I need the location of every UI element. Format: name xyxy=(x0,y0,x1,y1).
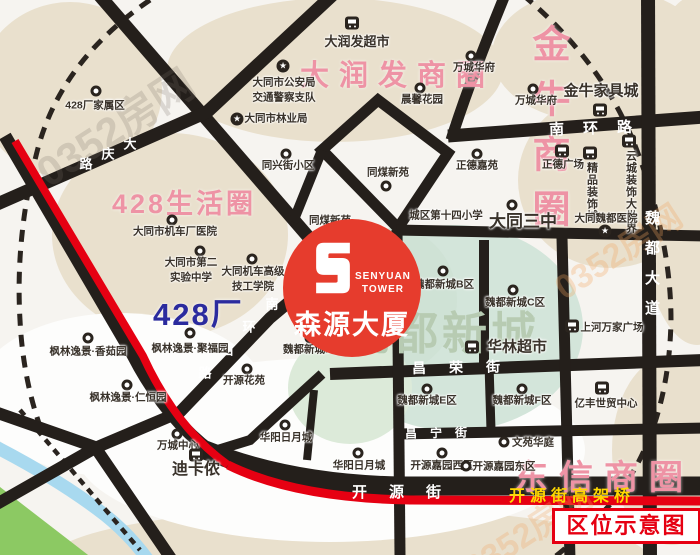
pin-icon xyxy=(437,448,448,459)
poi-label: 上河万家广场 xyxy=(581,321,644,336)
poi-label: 大同市机车厂医院 xyxy=(133,225,217,240)
cart-icon xyxy=(583,147,597,160)
poi-label: 大同魏都医院 xyxy=(575,212,638,227)
road-label-nanhuan-west-road: 环 xyxy=(242,317,255,336)
pin-icon xyxy=(507,200,518,211)
road-label-daqing-road: 大 xyxy=(123,134,136,153)
logo-chinese-name: 森源大厦 xyxy=(294,303,410,342)
road-label-nanhuan-west-road: 路 xyxy=(198,363,211,382)
cart-icon xyxy=(565,320,579,333)
poi-label: 大同市公安局 交通警察支队 xyxy=(253,75,316,104)
pin-icon xyxy=(91,86,102,97)
poi-label: 正德广场 xyxy=(542,158,584,173)
business-circle-428: 428生活圈 xyxy=(112,182,256,221)
poi-label: 华阳日月城 xyxy=(333,459,386,474)
star-icon: ★ xyxy=(231,113,244,126)
road-label-kaiyuan-viaduct: 开源街高架桥 xyxy=(509,482,635,506)
poi-label: 正德嘉苑 xyxy=(456,159,498,174)
road-label-kaiyuan-street: 开源街 xyxy=(352,481,463,502)
poi-label: 开源嘉园东区 xyxy=(473,460,536,475)
poi-label: 开源花苑 xyxy=(223,374,265,389)
poi-label: 428厂家属区 xyxy=(65,99,125,114)
pin-icon xyxy=(280,420,291,431)
poi-label: 魏都新城C区 xyxy=(485,296,545,311)
poi-label: 万城华府 xyxy=(515,94,557,109)
senyuan-tower-logo: SENYUANTOWER 森源大厦 xyxy=(283,219,421,357)
poi-label: 晨馨花园 xyxy=(401,93,443,108)
poi-label: 金牛家具城 xyxy=(563,81,638,102)
star-icon: ★ xyxy=(277,60,290,73)
road-label-changning-street: 昌宁街 xyxy=(405,423,480,441)
poi-label: 大同市林业局 xyxy=(245,112,308,127)
poi-label: 魏都新城B区 xyxy=(414,278,474,293)
cart-icon xyxy=(595,382,609,395)
poi-label: 大同机车高级 技工学院 xyxy=(222,264,285,293)
pin-icon xyxy=(438,266,449,277)
poi-label: 迪卡侬 xyxy=(172,459,220,481)
poi-label: 魏都新城F区 xyxy=(493,394,552,409)
poi-label: 枫林逸景·香茹园 xyxy=(50,345,127,360)
pin-icon xyxy=(247,254,258,265)
cart-icon xyxy=(593,104,607,117)
poi-label: 万城华府 xyxy=(453,61,495,76)
pin-icon xyxy=(122,380,133,391)
poi-label: 大润发超市 xyxy=(324,33,389,51)
cart-icon xyxy=(622,135,636,148)
poi-label: 文苑华庭 xyxy=(512,436,554,451)
poi-label: 枫林逸景·聚福园 xyxy=(152,342,229,357)
road-label-nanhuan-west-road: 南 xyxy=(265,294,278,313)
poi-label: 魏都新城E区 xyxy=(397,394,457,409)
cart-icon xyxy=(465,341,479,354)
poi-label: 华林超市 xyxy=(487,337,547,358)
pin-icon xyxy=(508,285,519,296)
map-title: 区位示意图 xyxy=(552,508,700,544)
poi-label: 大同市第二 实验中学 xyxy=(165,255,218,284)
poi-label: 同兴街小区 xyxy=(262,159,315,174)
pin-icon xyxy=(381,181,392,192)
star-icon: ★ xyxy=(599,225,612,238)
pin-icon xyxy=(185,328,196,339)
road-label-daqing-road: 路 xyxy=(79,154,92,173)
road-label-changrong-street: 昌荣街 xyxy=(412,356,523,378)
senyuan-monogram-icon xyxy=(310,239,356,297)
cart-icon xyxy=(555,145,569,158)
poi-label: 大同三中 xyxy=(489,210,557,234)
poi-label: 华阳日月城 xyxy=(260,431,313,446)
road-label-weidu-avenue: 魏都大道 xyxy=(641,210,662,330)
poi-label: 亿丰世贸中心 xyxy=(575,397,638,412)
poi-label: 同煤新苑 xyxy=(367,166,409,181)
pin-icon xyxy=(353,448,364,459)
pin-icon xyxy=(499,437,510,448)
road-label-daqing-road: 庆 xyxy=(101,144,114,163)
pin-icon xyxy=(461,461,472,472)
poi-label: 枫林逸景·仁恒园 xyxy=(90,391,167,406)
location-map: 大润发商圈 金牛商圈 428生活圈 东信商圈 428厂 魏都新城 SENYUAN… xyxy=(0,0,700,555)
logo-english-name: SENYUANTOWER xyxy=(355,271,411,296)
cart-icon xyxy=(345,17,359,30)
pin-icon xyxy=(83,333,94,344)
zone-label-428-factory: 428厂 xyxy=(153,289,244,334)
